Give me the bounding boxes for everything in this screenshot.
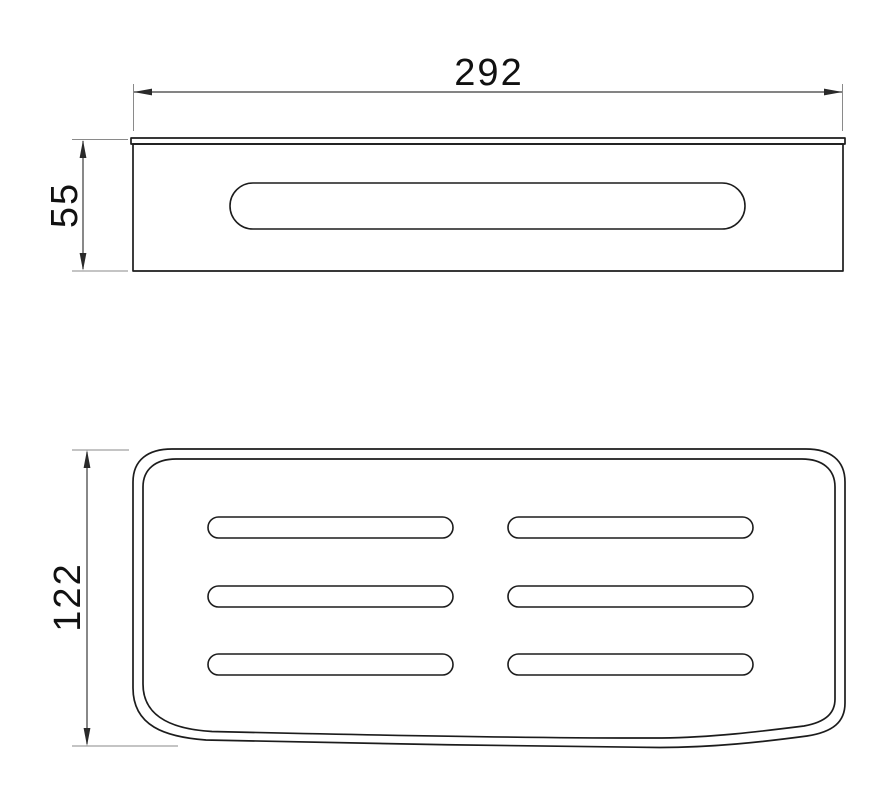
arrowhead-down (80, 253, 87, 271)
arrowhead-left (134, 89, 153, 96)
dimension-width-label: 292 (454, 52, 523, 94)
drain-slot (508, 517, 753, 538)
top-view (133, 449, 845, 748)
dimension-height-label: 55 (44, 182, 86, 228)
drain-slot (208, 586, 453, 607)
drain-slot (508, 586, 753, 607)
dimension-height: 55 (44, 140, 128, 272)
dimension-depth-label: 122 (47, 562, 89, 631)
drawing-canvas: 292 55 122 (0, 0, 893, 800)
technical-drawing: 292 55 122 (0, 0, 893, 800)
top-view-drain-slots (208, 517, 753, 675)
drain-slot (208, 654, 453, 675)
arrowhead-up (84, 450, 91, 468)
drain-slot (208, 517, 453, 538)
arrowhead-down (84, 728, 91, 746)
front-view-slot (230, 183, 745, 229)
arrowhead-right (824, 89, 843, 96)
dimension-depth: 122 (47, 450, 178, 746)
arrowhead-up (80, 140, 87, 158)
dimension-width: 292 (134, 52, 843, 131)
front-view (131, 138, 845, 271)
front-view-rim (131, 138, 845, 144)
drain-slot (508, 654, 753, 675)
